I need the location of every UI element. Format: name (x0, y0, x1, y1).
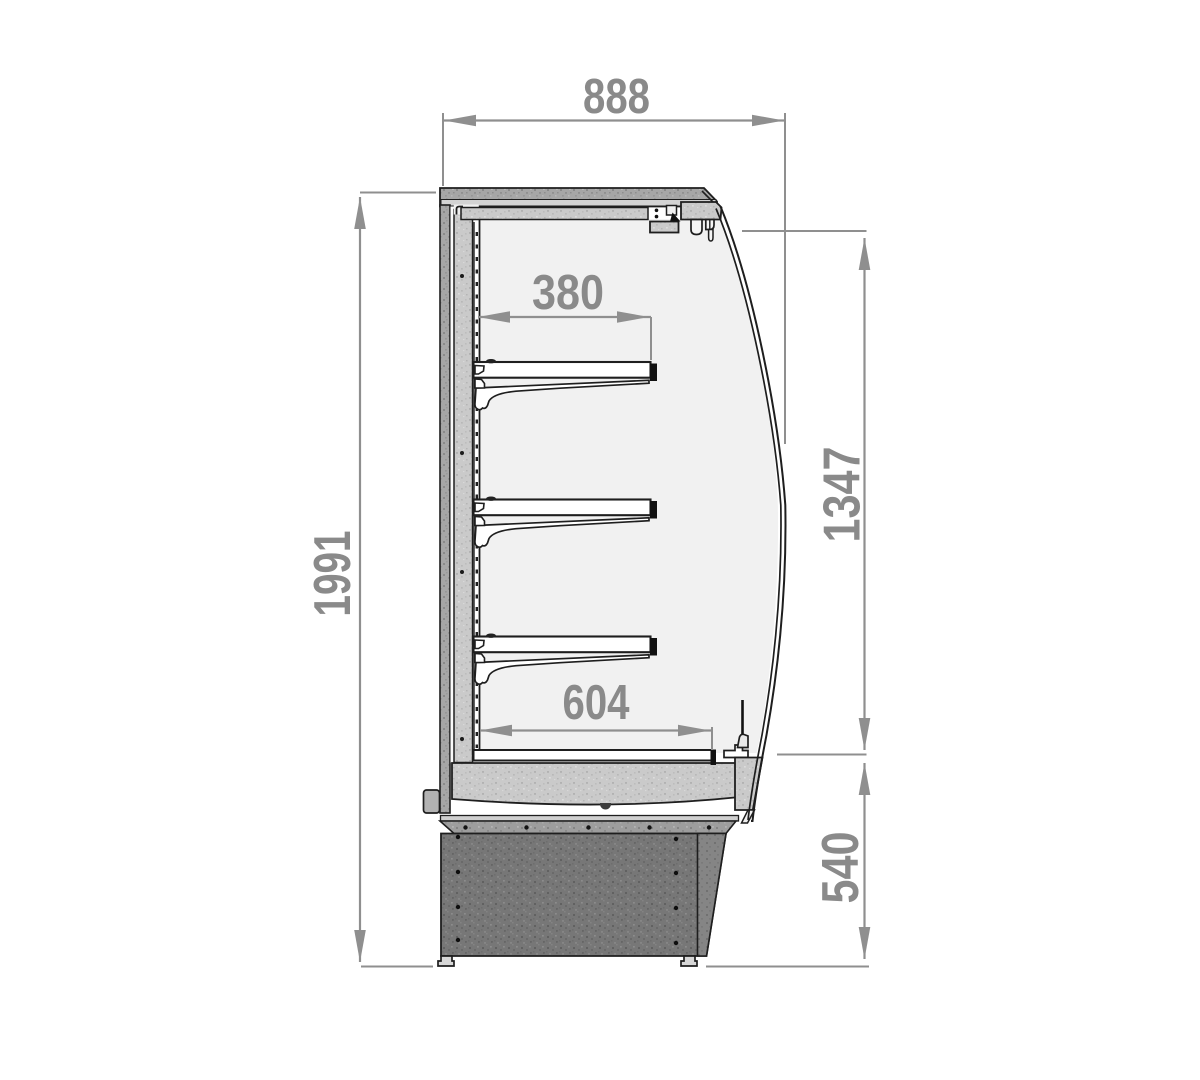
svg-text:604: 604 (563, 676, 630, 730)
svg-text:380: 380 (532, 266, 604, 320)
svg-text:540: 540 (811, 832, 869, 904)
svg-text:888: 888 (583, 70, 650, 124)
svg-text:1991: 1991 (303, 531, 361, 617)
svg-text:1347: 1347 (813, 447, 871, 543)
